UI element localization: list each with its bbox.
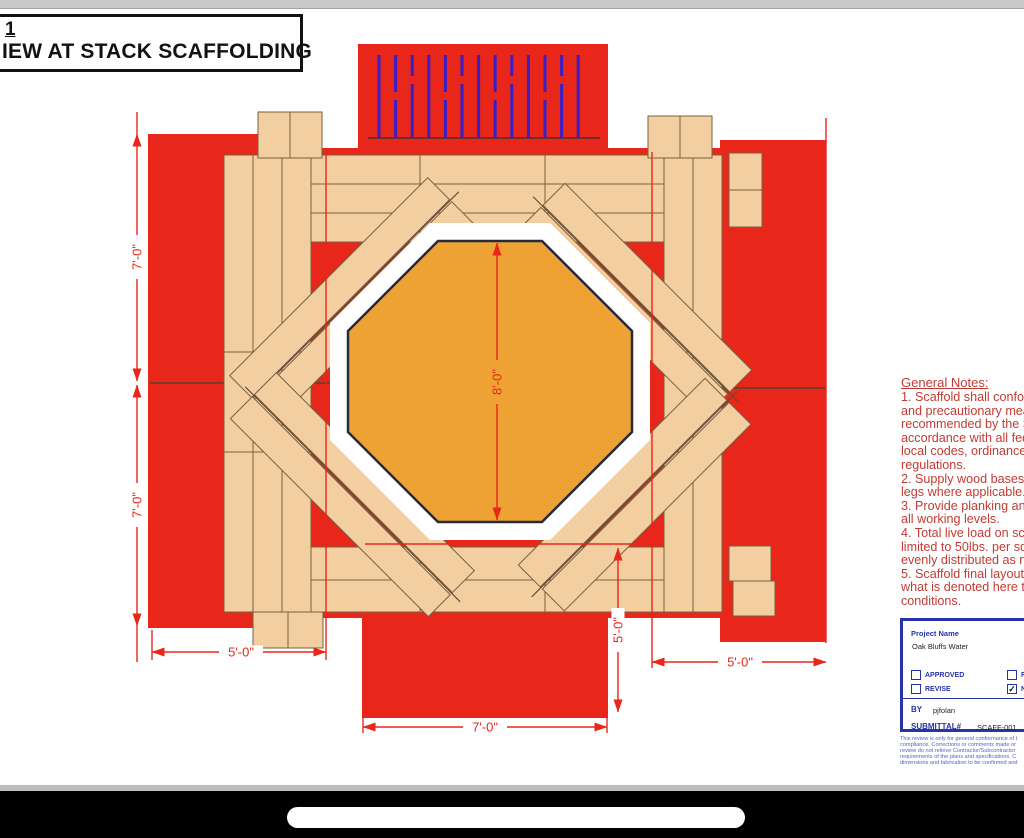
general-notes-line: 1. Scaffold shall conform — [901, 391, 1024, 405]
checkbox-row-no-exceptions: ✓ N — [1007, 684, 1024, 694]
checkbox-row-rejected: R — [1007, 670, 1024, 680]
general-notes-line: and precautionary meas — [901, 405, 1024, 419]
by-value: pjfolan — [933, 706, 955, 715]
general-notes-line: recommended by the S — [901, 418, 1024, 432]
bottom-red-bay — [362, 612, 608, 718]
checkbox-revise-label: REVISE — [925, 686, 951, 693]
home-indicator[interactable] — [287, 807, 745, 828]
dimension-right-vertical: 5'-0" — [611, 617, 626, 643]
general-notes-line: 2. Supply wood bases a — [901, 473, 1024, 487]
stack-scaffolding-plan: 7'-0" 7'-0" 8'-0" 5'-0" 5'-0" 7'-0" 5'-0… — [0, 0, 1024, 838]
general-notes-line: what is denoted here to — [901, 581, 1024, 595]
general-notes-line: conditions. — [901, 595, 1024, 609]
submittal-number-label: SUBMITTAL# — [911, 722, 961, 731]
general-notes-line: limited to 50lbs. per squ — [901, 541, 1024, 555]
checkbox-rejected — [1007, 670, 1017, 680]
general-notes-line: 5. Scaffold final layout r — [901, 568, 1024, 582]
general-notes-title: General Notes: — [901, 375, 1024, 390]
checkbox-row-revise: REVISE — [911, 684, 951, 694]
checkbox-approved — [911, 670, 921, 680]
dimension-left-upper: 7'-0" — [130, 244, 145, 270]
project-name-value: Oak Bluffs Water — [912, 642, 968, 651]
dimension-bottom-right: 5'-0" — [727, 655, 753, 670]
dimension-bottom-center: 7'-0" — [472, 720, 498, 735]
general-notes: General Notes: 1. Scaffold shall conform… — [901, 375, 1024, 609]
by-label: BY — [911, 705, 922, 714]
general-notes-line: regulations. — [901, 459, 1024, 473]
dimension-left-lower: 7'-0" — [130, 492, 145, 518]
stair-tower — [358, 44, 608, 155]
checkbox-revise — [911, 684, 921, 694]
general-notes-line: evenly distributed as ne — [901, 554, 1024, 568]
project-name-label: Project Name — [911, 629, 959, 638]
general-notes-line: accordance with all fede — [901, 432, 1024, 446]
general-notes-line: legs where applicable. — [901, 486, 1024, 500]
checkbox-approved-label: APPROVED — [925, 672, 964, 679]
submittal-divider — [903, 698, 1024, 699]
checkbox-row-approved: APPROVED — [911, 670, 964, 680]
disclaimer-line: dimensions and fabrication to be confirm… — [900, 760, 1024, 766]
checkbox-no-exceptions-checked: ✓ — [1007, 684, 1017, 694]
review-disclaimer: This review is only for general conforma… — [900, 736, 1024, 766]
bottom-bar — [0, 791, 1024, 838]
dimension-stack-width: 8'-0" — [490, 369, 505, 395]
dimension-bottom-left: 5'-0" — [228, 645, 254, 660]
submittal-block: Project Name Oak Bluffs Water APPROVED R… — [900, 618, 1024, 732]
general-notes-line: 4. Total live load on sca — [901, 527, 1024, 541]
submittal-number-value: SCAFF-001 — [977, 723, 1017, 732]
general-notes-line: 3. Provide planking and — [901, 500, 1024, 514]
general-notes-line: local codes, ordinances — [901, 445, 1024, 459]
general-notes-line: all working levels. — [901, 513, 1024, 527]
